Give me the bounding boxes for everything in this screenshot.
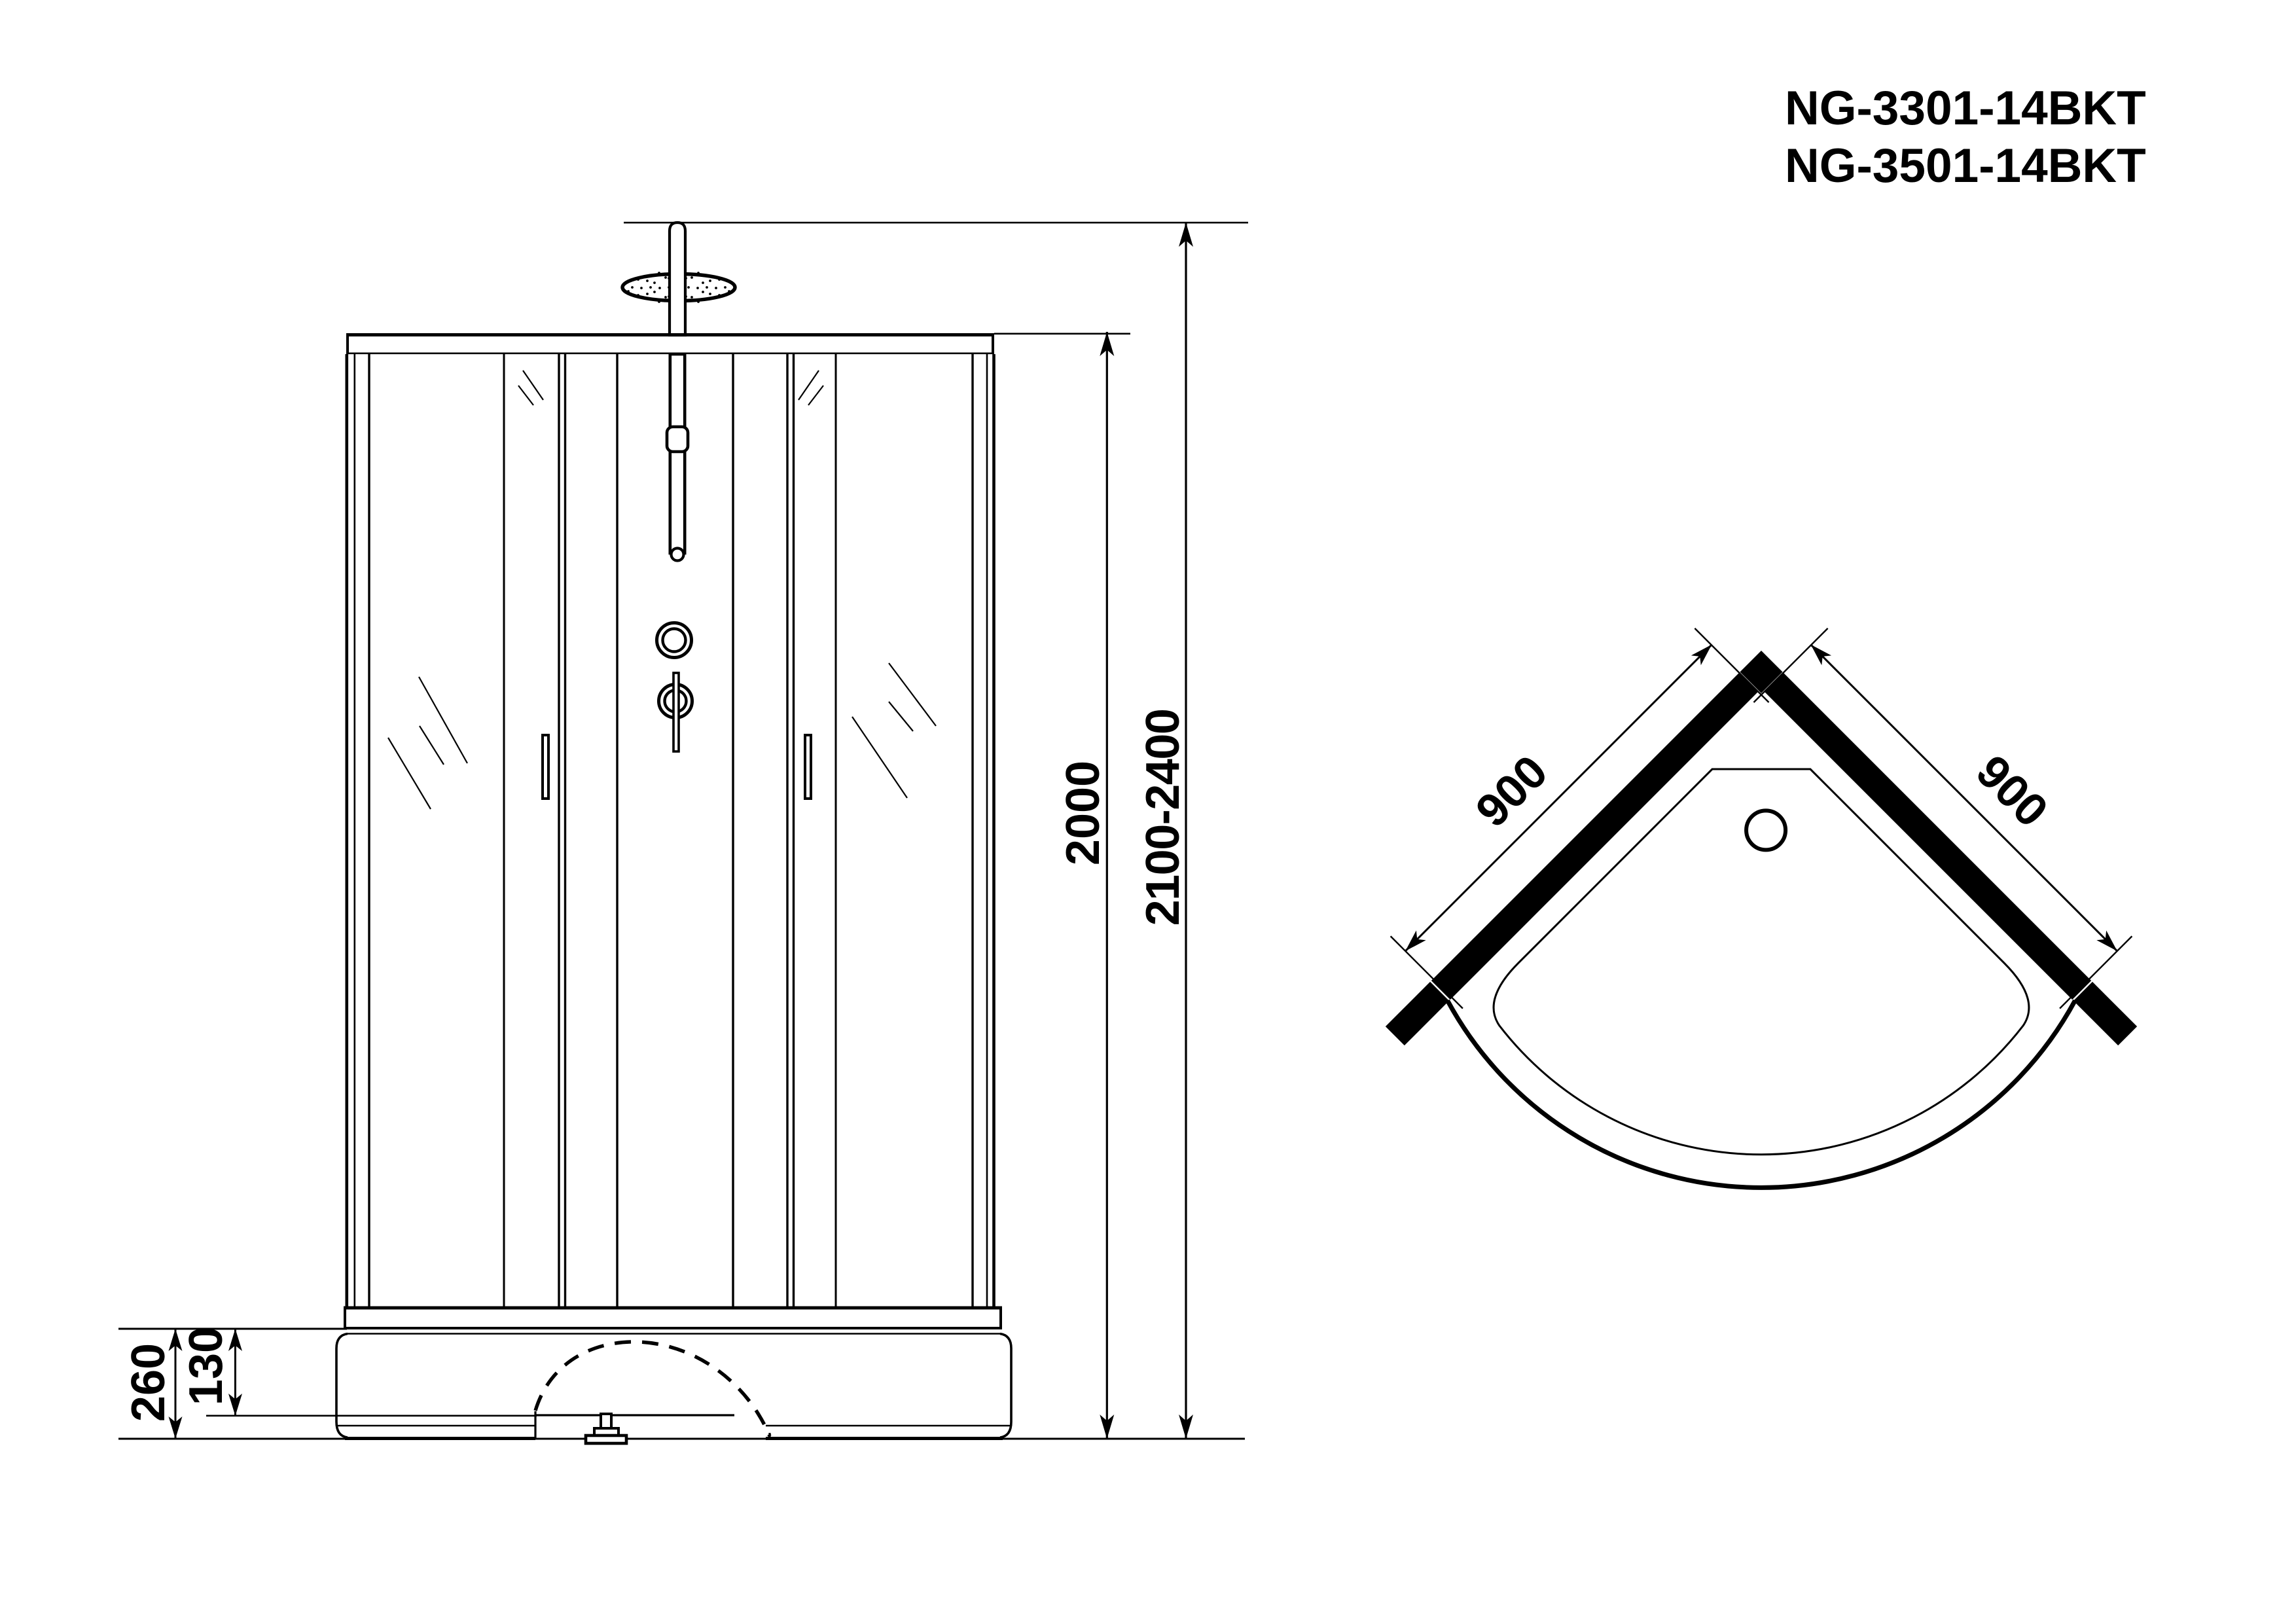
svg-text:900: 900	[1466, 746, 1558, 837]
svg-text:2100-2400: 2100-2400	[1137, 710, 1189, 926]
svg-text:NG-3501-14BKT: NG-3501-14BKT	[1785, 139, 2146, 192]
svg-text:900: 900	[1966, 746, 2058, 837]
svg-text:2000: 2000	[1057, 761, 1109, 865]
svg-text:260: 260	[122, 1343, 175, 1422]
svg-text:130: 130	[180, 1327, 232, 1405]
svg-text:NG-3301-14BKT: NG-3301-14BKT	[1785, 82, 2146, 135]
